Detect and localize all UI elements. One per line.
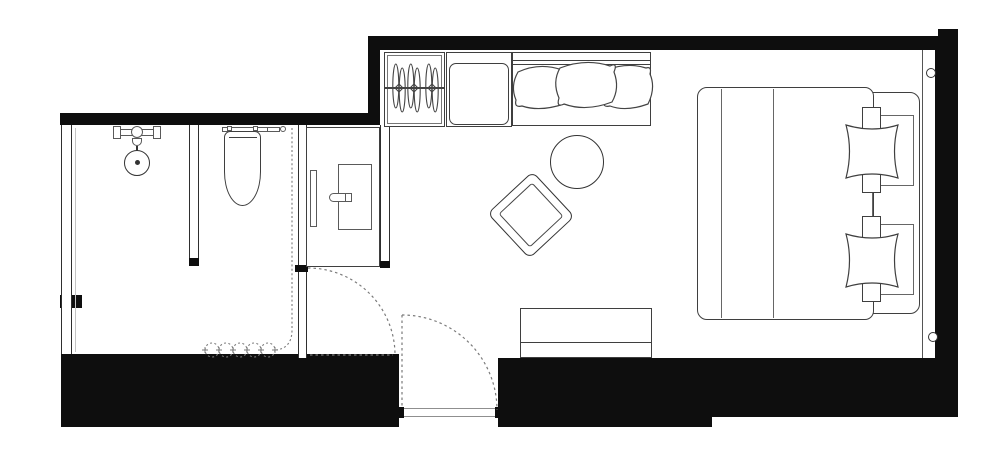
hanger-icon (393, 64, 405, 112)
curtain-coil-ticks (202, 347, 278, 353)
bathroom-door (308, 268, 395, 355)
hanger-icon (408, 64, 420, 112)
entry-door (402, 315, 497, 410)
sofa-pillows (513, 62, 652, 108)
sofa-pillow-center (556, 62, 617, 107)
bed-pillow-2 (846, 234, 898, 287)
floor-plan (0, 0, 1000, 469)
privacy-curtain (205, 128, 292, 357)
entry-door-arc (402, 315, 497, 410)
bed-pillow-1 (846, 125, 898, 178)
bathroom-door-arc (308, 268, 395, 355)
hanger-icon (426, 64, 438, 112)
hangers (393, 64, 438, 112)
bed-pillows (846, 125, 898, 287)
annotations-layer (0, 0, 1000, 469)
curtain-track (276, 128, 292, 350)
